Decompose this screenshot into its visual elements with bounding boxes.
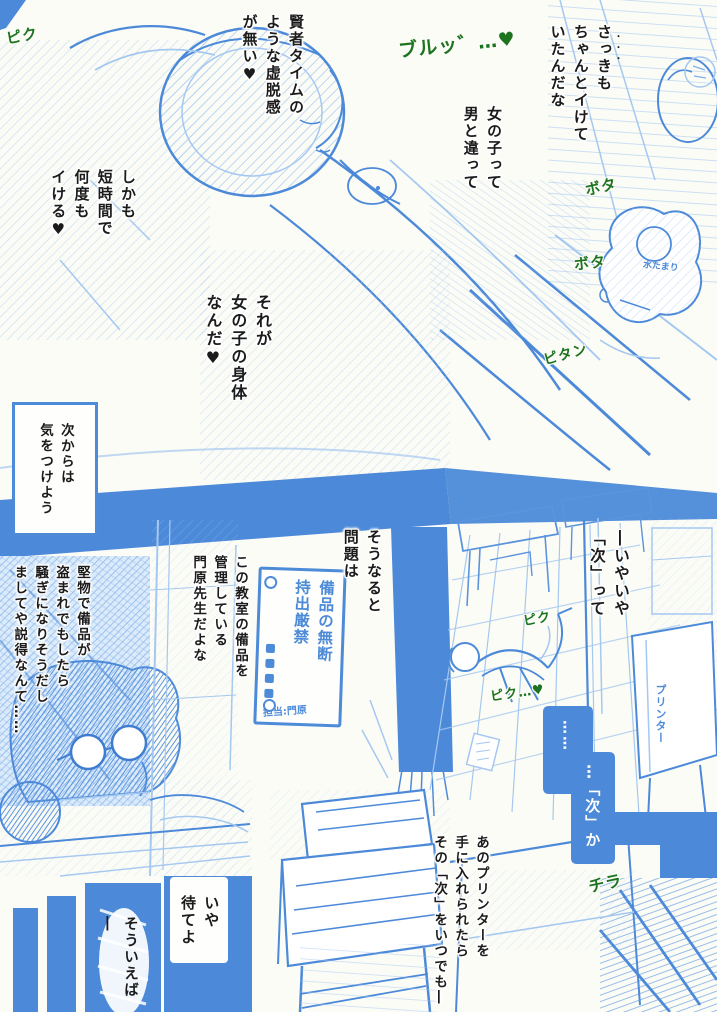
sketch-art bbox=[0, 0, 717, 1012]
caption-iya-mateyo: いや 待てよ bbox=[176, 895, 223, 946]
speech-shikamo: しかも 短時間で 何度も イける♥ bbox=[46, 169, 139, 240]
manga-page: さっきも ちゃんとイけて いたんだな ・・・ 女の子って 男と違って 賢者タイム… bbox=[0, 0, 717, 1012]
sign-poster: 備品の無断 持出厳禁 担当:門原 bbox=[253, 567, 346, 728]
sign-bullet bbox=[265, 659, 274, 668]
caption-iya-mateyo-box: いや 待てよ bbox=[170, 877, 228, 963]
speech-souieba: そういえば― bbox=[96, 916, 141, 1012]
sign-pin-icon bbox=[264, 576, 277, 589]
caption-tsugikara-box: 次からは 気をつけよう bbox=[12, 402, 98, 536]
speech-onnanoko: 女の子って 男と違って bbox=[459, 106, 506, 191]
speech-katabutsu: 堅物で備品が 盗まれでもしたら 騒ぎになりそうだし ましてや説得なんて…… bbox=[8, 565, 92, 736]
speech-sakki: さっきも ちゃんとイけて いたんだな bbox=[545, 24, 615, 143]
emphasis-dots: ・・・ bbox=[612, 32, 624, 65]
speech-iyaiya: ―いやいや 「次」って bbox=[585, 530, 633, 618]
caption-tsugikara: 次からは 気をつけよう bbox=[34, 423, 76, 516]
label-printer: プリンター bbox=[652, 684, 668, 744]
monologue-dots: …… bbox=[556, 720, 578, 752]
speech-sorega: それが 女の子の身体 なんだ♥ bbox=[200, 294, 274, 402]
sign-bullet bbox=[264, 689, 273, 698]
sign-title: 備品の無断 持出厳禁 bbox=[287, 579, 338, 663]
sfx-bota-2: ボタ bbox=[573, 250, 607, 274]
sign-bullet bbox=[265, 674, 274, 683]
speech-kenja: 賢者タイムの ような虚脱感 が無い♥ bbox=[237, 14, 307, 116]
monologue-tsugika: …「次」か bbox=[580, 764, 603, 849]
speech-kono-kyoshitsu: この教室の備品を 管理している 門原先生だよな bbox=[187, 555, 250, 679]
speech-sounaruto: そうなると 問題は bbox=[339, 529, 386, 614]
speech-ano-printer: あのプリンターを 手に入れられたら その「次」をいつでも― bbox=[428, 835, 491, 1006]
sign-bullet bbox=[266, 644, 275, 653]
